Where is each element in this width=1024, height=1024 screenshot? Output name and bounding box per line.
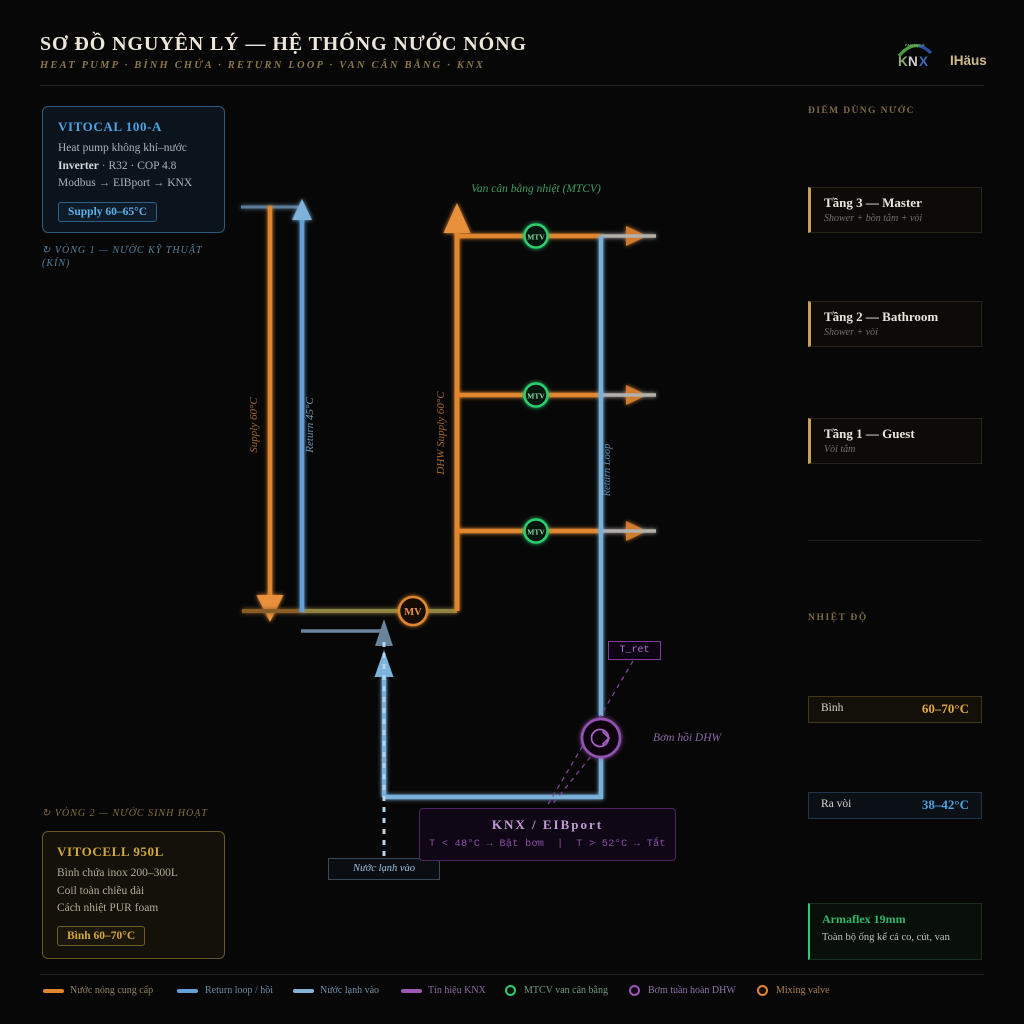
svg-text:Return 45°C: Return 45°C bbox=[304, 397, 316, 454]
svg-text:Return Loop: Return Loop bbox=[602, 444, 613, 498]
svg-text:Supply 60°C: Supply 60°C bbox=[248, 397, 260, 453]
svg-text:Bơm hồi DHW: Bơm hồi DHW bbox=[653, 731, 723, 744]
svg-text:MTV: MTV bbox=[527, 233, 545, 242]
svg-text:Van cân bằng nhiệt (MTCV): Van cân bằng nhiệt (MTCV) bbox=[471, 182, 601, 195]
svg-text:MV: MV bbox=[404, 607, 422, 618]
svg-text:DHW Supply 60°C: DHW Supply 60°C bbox=[435, 391, 447, 476]
svg-text:MTV: MTV bbox=[527, 528, 545, 537]
svg-text:MTV: MTV bbox=[527, 392, 545, 401]
